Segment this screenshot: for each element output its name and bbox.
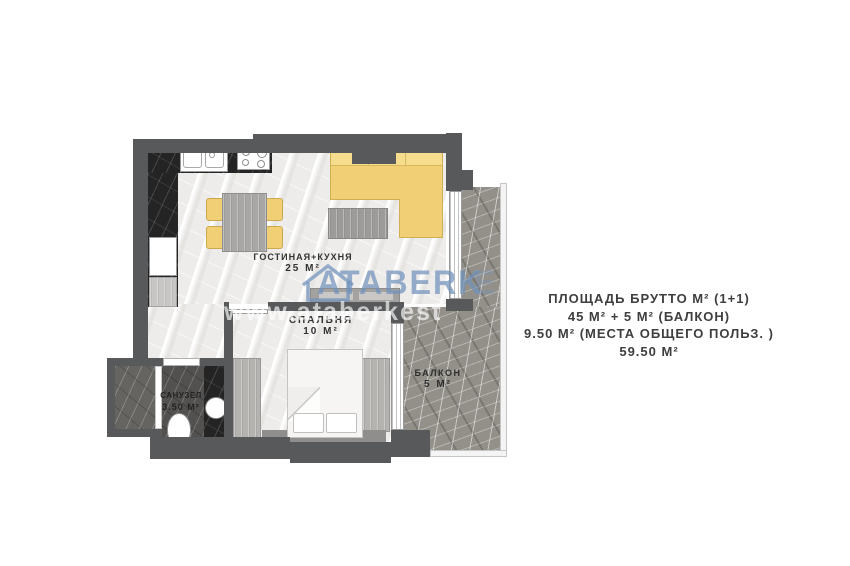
wall-left [133,139,148,358]
bed [287,349,363,438]
wall-entry-left [107,366,115,437]
bathroom-name: САНУЗЕЛ [146,390,216,401]
wardrobe-left [233,358,261,438]
wall-right-upper [446,133,462,191]
bed-pillow [293,413,324,433]
wall-bedroom-left [224,311,233,445]
wall-stub-balcony-top [461,170,473,190]
wall-bottom-center [290,442,391,463]
dining-table [222,193,267,252]
wall-entry-bottom [107,429,162,437]
wall-bottom-right [391,430,430,457]
balcony-railing-bottom [430,450,507,457]
watermark-brand-clipped: E [474,264,497,303]
kitchen-appliance-gray [149,277,177,307]
wall-top-right [253,134,461,153]
column [352,153,396,164]
floor-plan-page: ГОСТИНАЯ+КУХНЯ 25 М² СПАЛЬНЯ 10 М² САНУЗ… [0,0,850,566]
summary-line-total: 59.50 М² [498,343,800,361]
balcony-area: 5 М² [403,379,473,391]
bed-pillow [326,413,357,433]
bathroom-area: 3.50 М² [146,401,216,413]
coffee-table [328,208,388,239]
sofa-cushion-divider [405,153,406,165]
dining-chair [265,226,283,249]
area-summary: ПЛОЩАДЬ БРУТТО М² (1+1) 45 М² + 5 М² (БА… [498,290,800,360]
wall-top-left [133,139,253,153]
bathroom-door [163,358,200,366]
summary-line-common: 9.50 М² (МЕСТА ОБЩЕГО ПОЛЬЗ. ) [498,325,800,343]
sofa-chaise [399,199,443,238]
hallway-floor [148,304,224,366]
bathroom-label: САНУЗЕЛ 3.50 М² [146,390,216,413]
wall-bottom-left [150,437,290,459]
summary-line-balcony: 45 М² + 5 М² (БАЛКОН) [498,308,800,326]
balcony-name: БАЛКОН [403,368,473,379]
stove-burner [257,160,265,168]
dining-chair [265,198,283,221]
bedroom-area: 10 М² [256,326,386,338]
kitchen-appliance-white [149,237,177,276]
wardrobe-right [362,358,390,432]
watermark-url: www.ataberkest [224,296,442,327]
summary-line-gross: ПЛОЩАДЬ БРУТТО М² (1+1) [498,290,800,308]
balcony-label: БАЛКОН 5 М² [403,368,473,391]
stove-burner [242,159,249,166]
